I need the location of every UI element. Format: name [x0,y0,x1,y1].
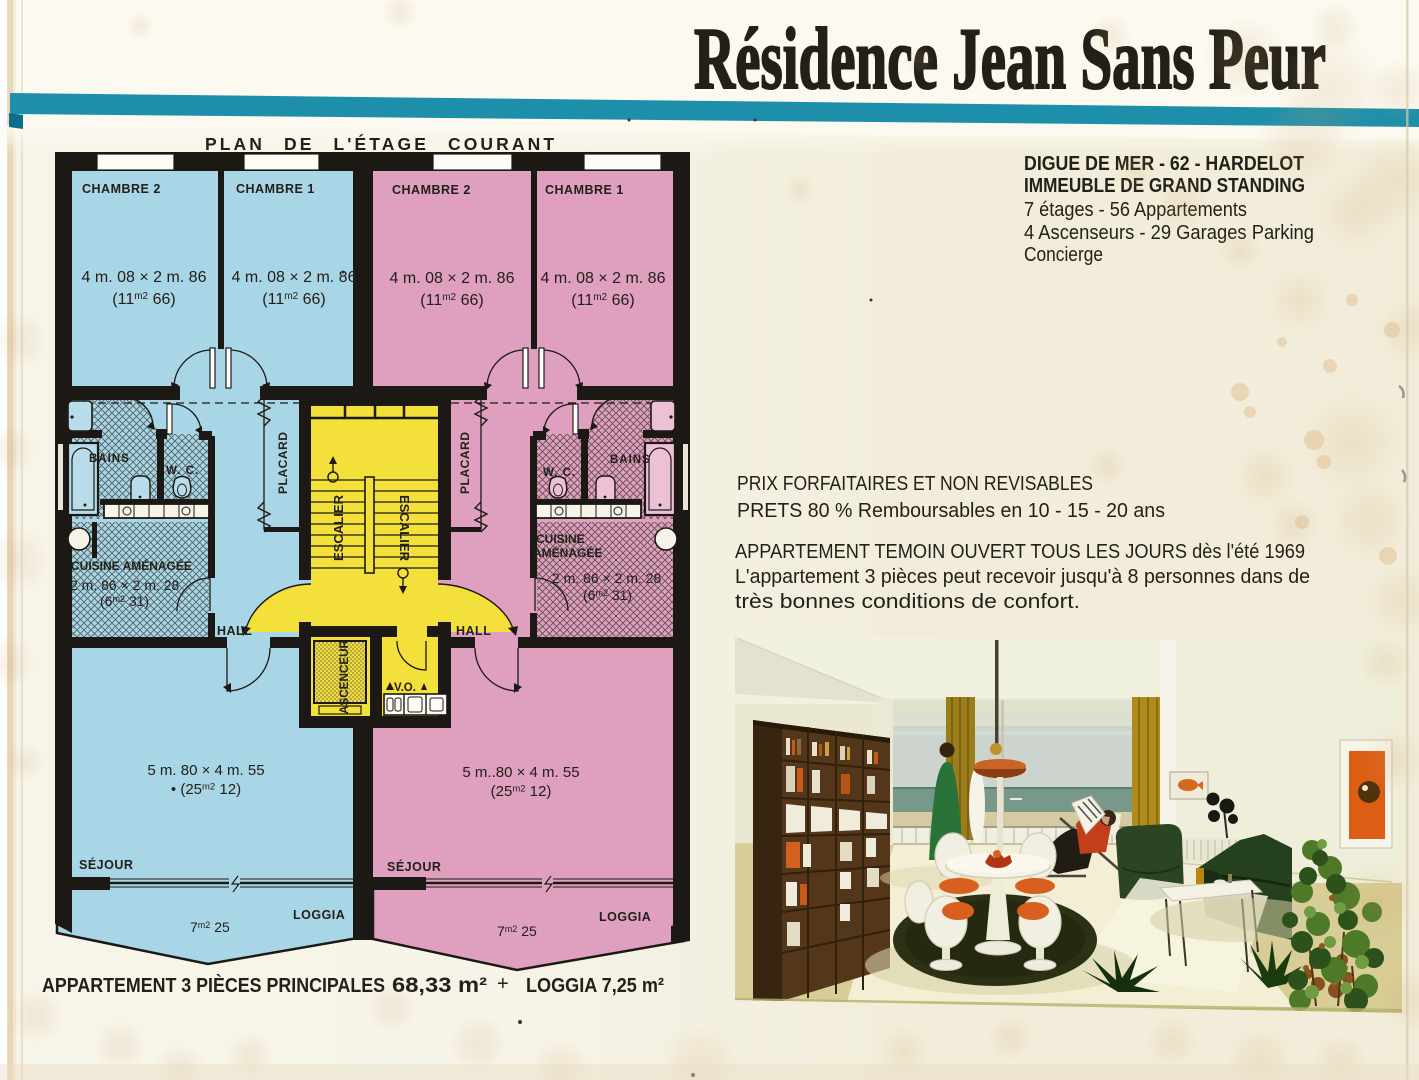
svg-text:7m2 25: 7m2 25 [190,919,230,935]
svg-text:(6m2 31): (6m2 31) [100,593,149,609]
svg-text:CUISINE: CUISINE [536,532,585,546]
svg-text:PLAN DE L'ÉTAGE COURANT: PLAN DE L'ÉTAGE COURANT [205,133,557,154]
svg-text:5 m. 80 × 4 m. 55: 5 m. 80 × 4 m. 55 [147,762,264,779]
svg-text:7 étages - 56 Appartements: 7 étages - 56 Appartements [1024,199,1247,221]
svg-text:SÉJOUR: SÉJOUR [387,859,441,874]
svg-text:PRIX FORFAITAIRES ET NON REVIS: PRIX FORFAITAIRES ET NON REVISABLES [737,473,1093,495]
svg-text:4 m. 08 × 2 m. 86: 4 m. 08 × 2 m. 86 [232,269,357,286]
svg-text:(6m2 31): (6m2 31) [583,587,632,603]
svg-text:L'appartement 3 pièces peut re: L'appartement 3 pièces peut recevoir jus… [735,566,1310,588]
svg-text:PLACARD: PLACARD [276,432,290,494]
svg-text:7m2 25: 7m2 25 [497,923,537,939]
svg-text:W. C.: W. C. [166,465,199,477]
svg-text:LOGGIA: LOGGIA [293,908,345,922]
svg-text:SÉJOUR: SÉJOUR [79,857,133,872]
svg-text:4 m. 08 × 2 m. 86: 4 m. 08 × 2 m. 86 [82,269,207,286]
svg-text:BAINS: BAINS [610,454,651,466]
svg-text:PLACARD: PLACARD [458,432,472,494]
svg-text:W. C.: W. C. [543,467,576,479]
svg-text:ASCENCEUR: ASCENCEUR [337,640,351,714]
svg-text:ESCALIER: ESCALIER [397,495,411,561]
svg-text:AMÉNAGÉE: AMÉNAGÉE [533,545,602,560]
svg-text:CHAMBRE 2: CHAMBRE 2 [392,183,471,197]
svg-text:BAINS: BAINS [89,453,130,465]
svg-text:HALL: HALL [217,624,252,638]
svg-text:V.O.: V.O. [394,682,416,694]
svg-text:Concierge: Concierge [1024,244,1103,266]
svg-text:CHAMBRE 1: CHAMBRE 1 [236,182,315,196]
svg-text:PRETS 80 % Remboursables en 10: PRETS 80 % Remboursables en 10 - 15 - 20… [737,500,1165,522]
svg-text:CHAMBRE 1: CHAMBRE 1 [545,183,624,197]
svg-text:APPARTEMENT TEMOIN OUVERT TOUS: APPARTEMENT TEMOIN OUVERT TOUS LES JOURS… [735,541,1305,563]
svg-text:LOGGIA: LOGGIA [599,910,651,924]
svg-text:très bonnes conditions de conf: très bonnes conditions de confort. [735,591,1080,613]
svg-text:4 m. 08 × 2 m. 86: 4 m. 08 × 2 m. 86 [541,270,666,287]
svg-text:2 m. 86 × 2 m. 28: 2 m. 86 × 2 m. 28 [70,577,180,593]
svg-text:CUISINE AMÉNAGÉE: CUISINE AMÉNAGÉE [71,558,192,573]
svg-text:2 m. 86 × 2 m. 28: 2 m. 86 × 2 m. 28 [552,570,662,586]
svg-text:4 m. 08 × 2 m. 86: 4 m. 08 × 2 m. 86 [390,270,515,287]
svg-text:APPARTEMENT 3 PIÈCES PRINCIPAL: APPARTEMENT 3 PIÈCES PRINCIPALES68,33 m²… [42,973,664,997]
svg-text:ESCALIER: ESCALIER [332,495,346,561]
svg-text:HALL: HALL [456,624,491,638]
svg-text:CHAMBRE 2: CHAMBRE 2 [82,182,161,196]
svg-text:5 m..80 × 4 m. 55: 5 m..80 × 4 m. 55 [462,764,579,781]
